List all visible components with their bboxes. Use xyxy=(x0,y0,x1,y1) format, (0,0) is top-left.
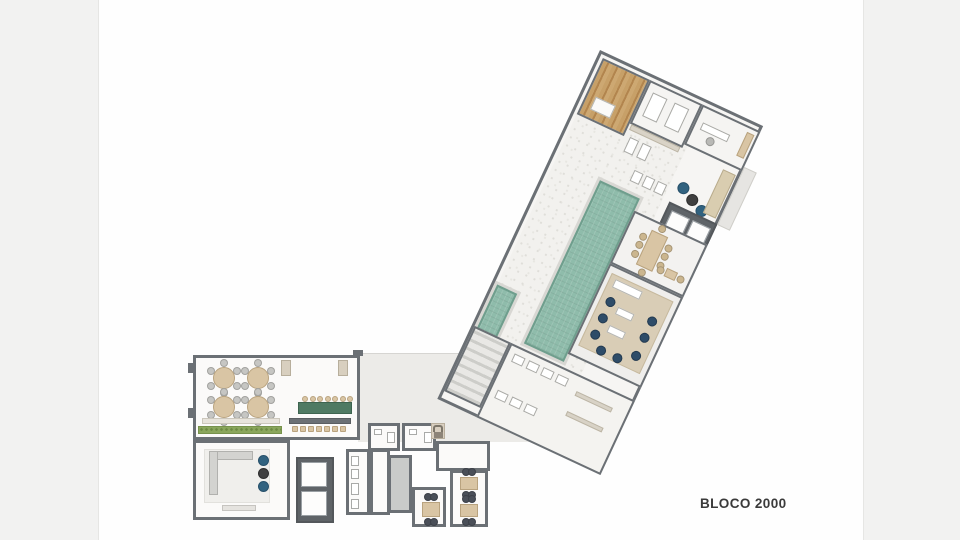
wc-1 xyxy=(368,423,400,451)
shower-stall xyxy=(540,367,555,380)
pouf xyxy=(258,455,269,466)
dining-table-round xyxy=(213,367,235,389)
stool xyxy=(347,396,353,402)
bar-stool xyxy=(332,426,338,432)
wall-stub xyxy=(188,408,194,418)
chair xyxy=(468,495,476,503)
games-room xyxy=(450,470,488,527)
pouf xyxy=(258,468,269,479)
bar-stool xyxy=(340,426,346,432)
chair xyxy=(468,518,476,526)
lock-icon xyxy=(433,425,443,432)
stool xyxy=(317,396,323,402)
vestibule xyxy=(436,441,490,471)
breakfast-table xyxy=(422,502,440,517)
stool xyxy=(310,396,316,402)
gym-equipment xyxy=(636,143,652,162)
massage-bed xyxy=(664,103,689,133)
stove xyxy=(351,499,359,509)
bench-row xyxy=(202,418,280,424)
appliance xyxy=(351,456,359,466)
stool xyxy=(325,396,331,402)
stool xyxy=(302,396,308,402)
lounge-room xyxy=(193,440,290,520)
massage-bed xyxy=(642,92,667,122)
shower-stall xyxy=(525,360,540,373)
plan-title: BLOCO 2000 xyxy=(700,496,840,511)
wall-stub xyxy=(353,350,363,356)
chair xyxy=(220,388,228,396)
bar-stool xyxy=(300,426,306,432)
wall-stub xyxy=(188,363,194,373)
hallway xyxy=(370,449,390,515)
storage-room xyxy=(388,455,412,513)
appliance xyxy=(351,469,359,479)
chair xyxy=(430,493,438,501)
elevator-car xyxy=(301,462,327,487)
chair xyxy=(220,359,228,367)
stool xyxy=(332,396,338,402)
bench xyxy=(338,360,348,376)
shower-stall xyxy=(509,396,524,409)
sauna-bench xyxy=(590,97,616,119)
shower-stall xyxy=(554,374,569,387)
chair xyxy=(233,382,241,390)
shower-stall xyxy=(523,403,538,416)
communal-table xyxy=(298,402,352,414)
sofa xyxy=(209,451,218,495)
bar-stool xyxy=(292,426,298,432)
games-table xyxy=(460,504,478,517)
elevator-car xyxy=(301,491,327,516)
stool xyxy=(340,396,346,402)
games-table xyxy=(460,477,478,490)
shower-stall xyxy=(511,353,526,366)
dining-table-round xyxy=(247,367,269,389)
planter-hedge xyxy=(198,426,282,434)
dining-table-round xyxy=(213,396,235,418)
sink xyxy=(409,429,417,435)
bar-stool xyxy=(316,426,322,432)
locked-door-marker xyxy=(431,423,445,439)
toilet xyxy=(387,432,395,443)
shower-stall xyxy=(494,390,509,403)
pouf xyxy=(258,481,269,492)
sink xyxy=(374,429,382,435)
bench xyxy=(281,360,291,376)
office-chair xyxy=(704,136,716,148)
party-room xyxy=(193,355,360,440)
kitchen xyxy=(346,449,370,515)
locker-bench xyxy=(565,411,603,432)
bar-stool xyxy=(308,426,314,432)
chair xyxy=(267,382,275,390)
chair xyxy=(675,274,686,285)
tv-console xyxy=(222,505,256,511)
locker-bench xyxy=(575,391,613,412)
chair xyxy=(430,518,438,526)
chair xyxy=(468,468,476,476)
chair xyxy=(254,388,262,396)
sink xyxy=(351,483,359,495)
chair xyxy=(659,251,670,262)
dining-table-round xyxy=(247,396,269,418)
floor-plan-canvas: BLOCO 2000 xyxy=(0,0,960,540)
bar-counter xyxy=(289,418,351,424)
breakfast-room xyxy=(412,487,446,527)
desk xyxy=(700,122,731,142)
bar-stool xyxy=(324,426,330,432)
elevator-a xyxy=(296,457,334,523)
gym-equipment xyxy=(653,181,667,196)
chair xyxy=(254,359,262,367)
